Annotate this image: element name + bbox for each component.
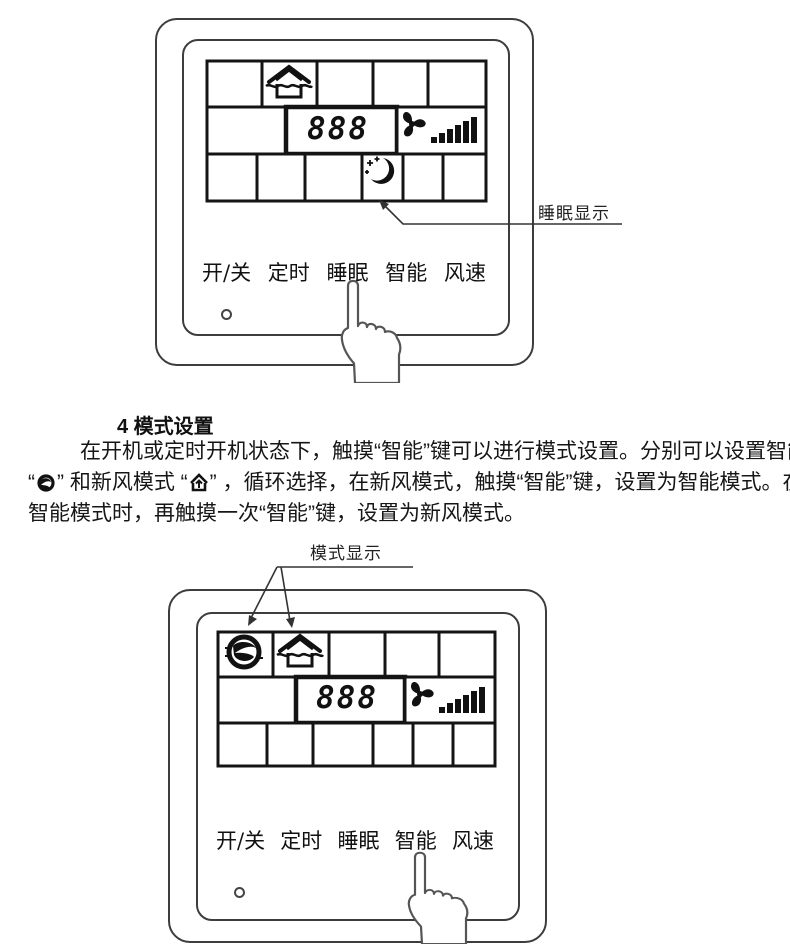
button-power: 开/关 xyxy=(216,825,265,855)
button-power: 开/关 xyxy=(202,257,251,287)
button-sleep: 睡眠 xyxy=(338,825,380,855)
manual-page: 888 开/关 定时 睡眠 智能 风速 睡眠显示 4 模式设置 xyxy=(0,0,790,944)
quote-open: “ xyxy=(28,471,35,494)
paragraph-line-2: “” 和新风模式 “” ，循环选择，在新风模式，触摸“智能”键，设置为智能模式。… xyxy=(28,467,770,498)
button-timer: 定时 xyxy=(280,825,322,855)
paragraph-line-3: 智能模式时，再触摸一次“智能”键，设置为新风模式。 xyxy=(28,498,770,529)
led-dot-icon xyxy=(234,887,245,898)
temp-digits-top: 888 xyxy=(307,111,369,147)
temp-digits-bottom: 888 xyxy=(316,680,378,716)
section-paragraph: 在开机或定时开机状态下，触摸“智能”键可以进行模式设置。分别可以设置智能模式 “… xyxy=(28,436,770,529)
lcd-display-bottom: 888 xyxy=(215,629,498,769)
led-dot-icon xyxy=(221,309,232,320)
paragraph-line-1: 在开机或定时开机状态下，触摸“智能”键可以进行模式设置。分别可以设置智能模式 xyxy=(28,436,770,467)
button-timer: 定时 xyxy=(268,257,310,287)
pointing-hand-icon xyxy=(407,851,479,944)
mode-display-label: 模式显示 xyxy=(310,539,382,564)
smart-mode-inline-icon xyxy=(36,473,56,493)
fresh-air-inline-icon xyxy=(189,473,209,493)
button-fanspeed: 风速 xyxy=(444,257,486,287)
section-heading: 4 模式设置 xyxy=(117,410,214,439)
lcd-display-top: 888 xyxy=(204,58,489,204)
pointing-hand-icon xyxy=(340,279,412,383)
between-icons-text: ” 和新风模式 “ xyxy=(57,471,188,494)
after-icons-text: ” ，循环选择，在新风模式，触摸“智能”键，设置为智能模式。在 xyxy=(210,471,790,494)
sleep-display-label: 睡眠显示 xyxy=(538,199,610,224)
